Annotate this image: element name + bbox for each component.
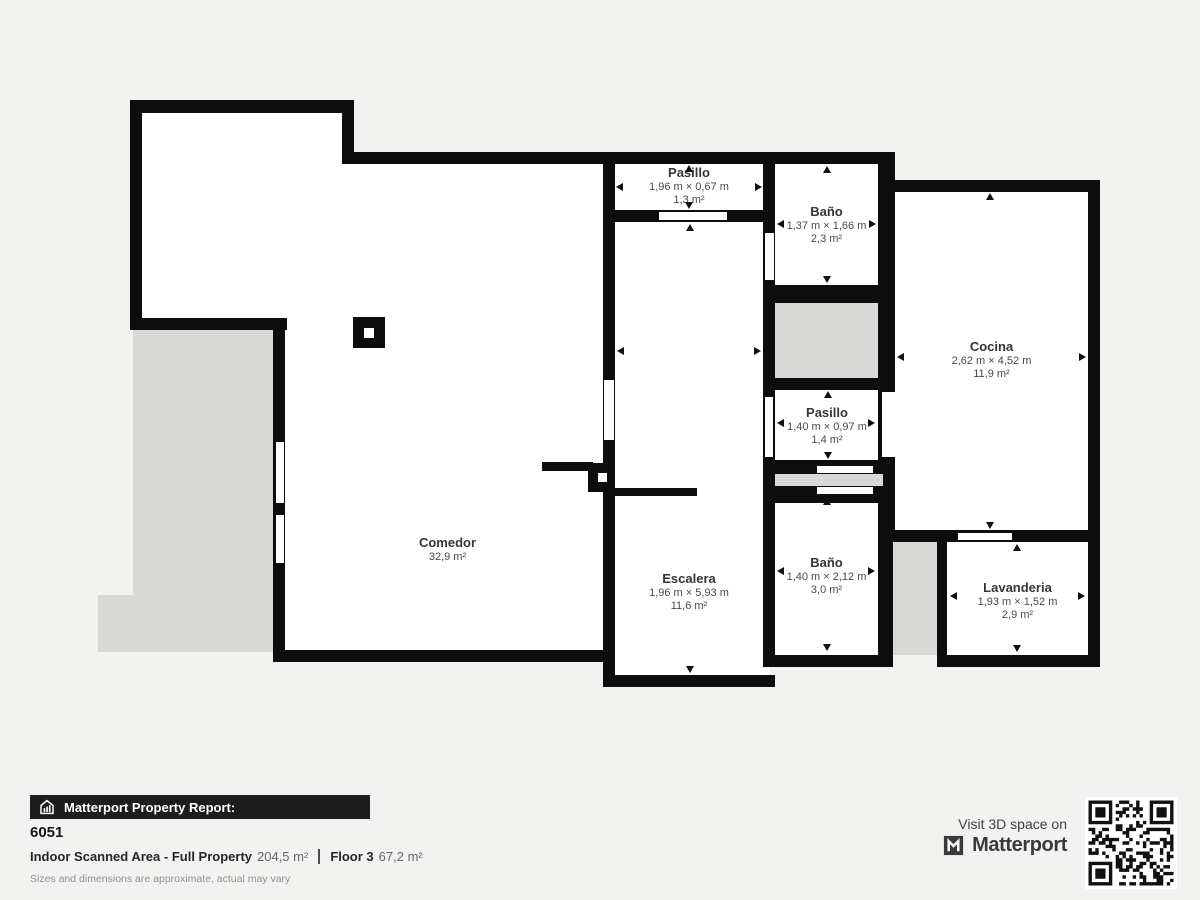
visit-3d-text: Visit 3D space on [860, 816, 1067, 832]
scanned-area-label: Indoor Scanned Area - Full Property [30, 849, 252, 864]
down-arrow-icon [1013, 645, 1021, 652]
wall-stub [542, 462, 593, 471]
right-arrow-icon [1079, 353, 1086, 361]
wall [937, 530, 947, 667]
room-label-pasillo-mid: Pasillo 1,40 m × 0,97 m 1,4 m² [771, 398, 883, 454]
house-chart-icon [38, 798, 56, 816]
wall [763, 378, 893, 390]
void-area [775, 474, 883, 486]
right-arrow-icon [1078, 592, 1085, 600]
void-area [133, 330, 273, 652]
wall [130, 100, 142, 330]
up-arrow-icon [823, 498, 831, 505]
wall [1088, 180, 1100, 667]
left-arrow-icon [777, 419, 784, 427]
room-label-bano-top: Baño 1,37 m × 1,66 m 2,3 m² [775, 185, 878, 265]
down-arrow-icon [824, 452, 832, 459]
left-arrow-icon [616, 183, 623, 191]
report-header-label: Matterport Property Report: [64, 800, 235, 815]
floor-plan: Pasillo 1,96 m × 0,67 m 1,3 m² Baño 1,37… [0, 0, 1200, 900]
divider [318, 849, 320, 864]
column-core [364, 328, 374, 338]
up-arrow-icon [1013, 544, 1021, 551]
right-arrow-icon [868, 567, 875, 575]
room-comedor-fill [136, 106, 352, 324]
qr-code [1085, 797, 1177, 889]
room-label-escalera: Escalera 1,96 m × 5,93 m 11,6 m² [609, 563, 769, 621]
room-label-bano-bottom: Baño 1,40 m × 2,12 m 3,0 m² [775, 548, 878, 604]
property-id: 6051 [30, 824, 63, 841]
door-opening [817, 487, 873, 494]
door-opening [882, 392, 895, 457]
wall [883, 180, 1100, 192]
brand-row: Matterport [860, 834, 1067, 857]
report-header-bar: Matterport Property Report: [30, 795, 370, 819]
window-opening [276, 442, 284, 503]
down-arrow-icon [823, 644, 831, 651]
up-arrow-icon [685, 165, 693, 172]
left-arrow-icon [950, 592, 957, 600]
wall [763, 285, 893, 303]
room-label-comedor: Comedor 32,9 m² [375, 530, 520, 570]
wall [763, 655, 893, 667]
floor-value: 67,2 m² [379, 849, 423, 864]
door-opening [659, 212, 727, 220]
down-arrow-icon [686, 666, 694, 673]
matterport-logo-icon [941, 834, 966, 857]
wall [603, 675, 775, 687]
room-comedor-fill [279, 318, 609, 656]
area-summary: Indoor Scanned Area - Full Property 204,… [30, 849, 423, 864]
down-arrow-icon [685, 202, 693, 209]
window-opening [276, 515, 284, 563]
brand-wordmark: Matterport [972, 834, 1067, 857]
void-area [890, 542, 937, 655]
right-arrow-icon [869, 220, 876, 228]
up-arrow-icon [824, 391, 832, 398]
wall [130, 318, 287, 330]
right-arrow-icon [868, 419, 875, 427]
door-opening [765, 233, 774, 280]
wall [273, 650, 615, 662]
left-arrow-icon [617, 347, 624, 355]
up-arrow-icon [823, 166, 831, 173]
floor-label: Floor 3 [330, 849, 373, 864]
down-arrow-icon [823, 276, 831, 283]
room-label-cocina: Cocina 2,62 m × 4,52 m 11,9 m² [895, 330, 1088, 390]
wall [130, 100, 354, 113]
wall [878, 542, 893, 667]
left-arrow-icon [897, 353, 904, 361]
room-comedor-fill [346, 158, 609, 324]
door-opening [817, 466, 873, 473]
left-arrow-icon [777, 220, 784, 228]
column-core [598, 473, 607, 482]
left-arrow-icon [777, 567, 784, 575]
wall [937, 655, 1100, 667]
void-area [775, 303, 883, 378]
disclaimer-text: Sizes and dimensions are approximate, ac… [30, 873, 290, 885]
stair-line [615, 488, 697, 496]
door-opening [958, 533, 1012, 540]
right-arrow-icon [755, 183, 762, 191]
door-opening [604, 380, 614, 440]
void-area [98, 595, 133, 652]
room-label-lavanderia: Lavanderia 1,93 m × 1,52 m 2,9 m² [947, 573, 1088, 629]
down-arrow-icon [986, 522, 994, 529]
right-arrow-icon [754, 347, 761, 355]
up-arrow-icon [986, 193, 994, 200]
up-arrow-icon [686, 224, 694, 231]
scanned-area-value: 204,5 m² [257, 849, 308, 864]
